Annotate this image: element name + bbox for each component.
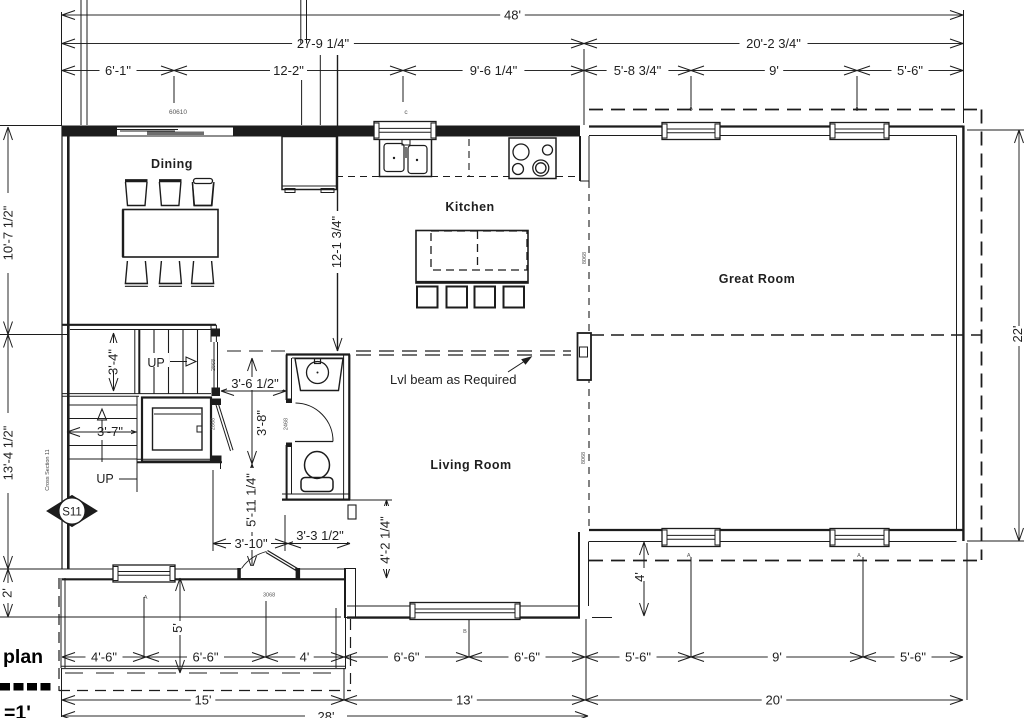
svg-text:12-1 3/4": 12-1 3/4" (329, 215, 344, 268)
svg-text:A: A (144, 595, 148, 601)
svg-text:A: A (687, 553, 691, 559)
svg-text:5'-8 3/4": 5'-8 3/4" (614, 63, 662, 78)
svg-text:12-2": 12-2" (273, 63, 304, 78)
svg-text:13': 13' (456, 693, 473, 708)
svg-text:5': 5' (170, 623, 185, 633)
svg-text:S11: S11 (62, 507, 82, 519)
svg-text:5'-6": 5'-6" (897, 63, 923, 78)
svg-text:Lvl beam as Required: Lvl beam as Required (390, 372, 516, 387)
svg-text:3'-6 1/2": 3'-6 1/2" (231, 376, 279, 391)
svg-text:4'-6": 4'-6" (91, 650, 117, 665)
svg-text:8068: 8068 (581, 452, 587, 464)
svg-text:13'-4 1/2": 13'-4 1/2" (1, 425, 16, 480)
svg-text:Dining: Dining (151, 157, 193, 171)
svg-text:6'-6": 6'-6" (394, 650, 420, 665)
svg-text:A: A (857, 553, 861, 559)
svg-text:2468: 2468 (284, 418, 290, 430)
svg-text:3'-3 1/2": 3'-3 1/2" (296, 528, 344, 543)
svg-text:Great Room: Great Room (719, 272, 796, 286)
svg-text:=1': =1' (4, 702, 31, 718)
svg-text:20'-2 3/4": 20'-2 3/4" (746, 36, 801, 51)
svg-text:4': 4' (632, 572, 647, 582)
svg-text:5'-6": 5'-6" (900, 650, 926, 665)
svg-text:9': 9' (772, 650, 782, 665)
svg-text:9'-6 1/4": 9'-6 1/4" (470, 63, 518, 78)
svg-text:28': 28' (318, 709, 335, 718)
svg-text:3'-8": 3'-8" (254, 410, 269, 436)
svg-text:plan: plan (3, 646, 43, 668)
svg-text:6'-6": 6'-6" (193, 650, 219, 665)
svg-text:9': 9' (769, 63, 779, 78)
svg-text:6'-1": 6'-1" (105, 63, 131, 78)
svg-text:15': 15' (195, 693, 212, 708)
svg-text:5'-6": 5'-6" (625, 650, 651, 665)
svg-text:10'-7 1/2": 10'-7 1/2" (1, 205, 16, 260)
svg-text:48': 48' (504, 8, 521, 23)
svg-text:Living Room: Living Room (430, 458, 511, 472)
svg-text:5'-11 1/4": 5'-11 1/4" (244, 473, 259, 527)
svg-text:UP: UP (147, 356, 164, 370)
svg-text:UP: UP (96, 472, 113, 486)
svg-text:Cross Section 11: Cross Section 11 (45, 449, 51, 490)
svg-text:2': 2' (0, 588, 15, 598)
svg-text:27-9 1/4": 27-9 1/4" (297, 36, 350, 51)
svg-text:3068: 3068 (263, 593, 275, 599)
svg-text:22': 22' (1010, 326, 1024, 343)
svg-text:4'-2 1/4": 4'-2 1/4" (378, 516, 393, 564)
svg-text:3'-4": 3'-4" (106, 349, 121, 375)
svg-text:6'-6": 6'-6" (514, 650, 540, 665)
svg-text:B: B (463, 629, 467, 635)
svg-text:Kitchen: Kitchen (445, 200, 494, 214)
svg-text:60610: 60610 (169, 109, 187, 116)
svg-text:2868: 2868 (211, 359, 217, 371)
svg-text:3'-10": 3'-10" (234, 536, 268, 551)
svg-text:20': 20' (766, 693, 783, 708)
svg-text:4': 4' (300, 650, 310, 665)
svg-text:8068: 8068 (582, 252, 588, 264)
svg-text:2868: 2868 (211, 418, 217, 430)
